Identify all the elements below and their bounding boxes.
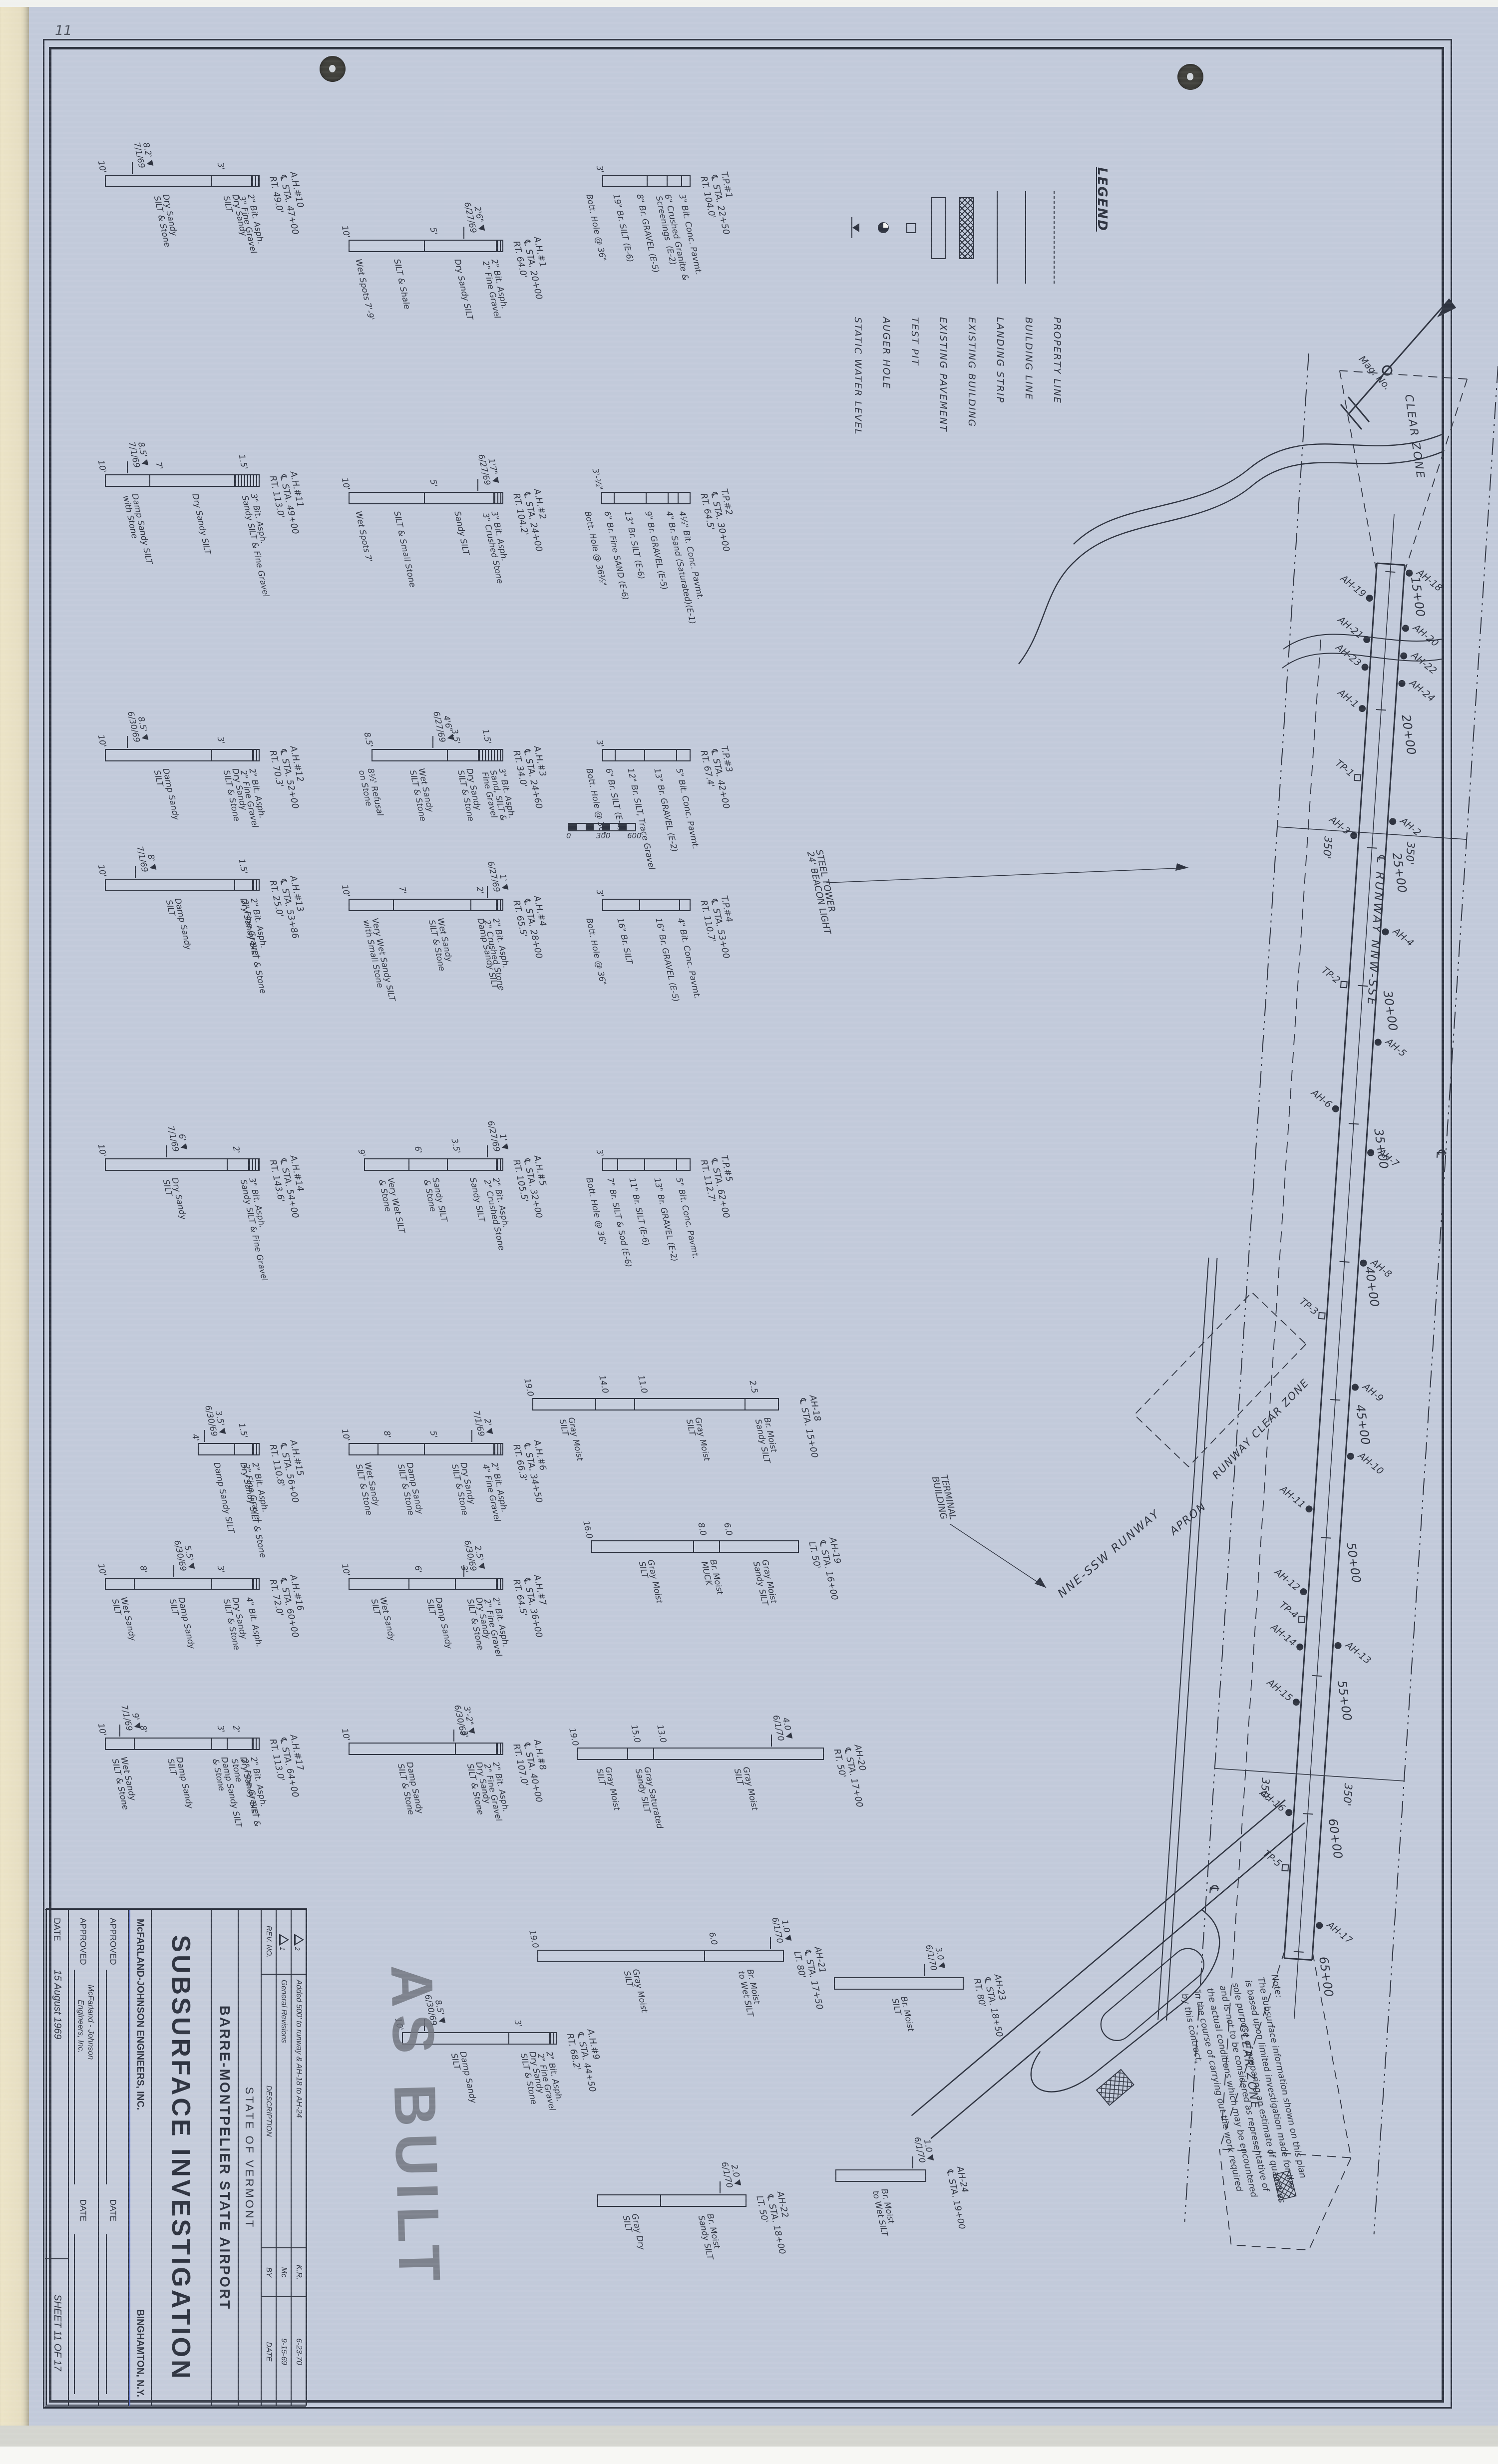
boring-header: A.H.#5 ℄ STA. 32+00 RT. 105.5' [510, 1154, 554, 1221]
water-leader [132, 162, 133, 174]
boring-header: A.H.#12 ℄ STA. 52+00 RT. 70.3' [267, 745, 310, 812]
water-leader [720, 2181, 721, 2193]
rev-by: Mc [276, 2248, 291, 2297]
boring-stick [349, 240, 503, 252]
boring-header: AH-24 ℄ STA. 19+00 [944, 2165, 977, 2230]
boring-stick [198, 1443, 260, 1455]
boring-header: A.H.#16 ℄ STA. 60+00 RT. 72.0' [267, 1574, 310, 1641]
layer-label: Br. Moist SILT [891, 1996, 915, 2034]
depth-tick: 3' [209, 1696, 226, 1734]
layer-label: 16" Br. SILT [616, 917, 634, 965]
layer-boundary [248, 1159, 249, 1170]
water-leader [464, 227, 465, 239]
layer-boundary [252, 1444, 253, 1454]
pavement-cap [479, 750, 503, 760]
firm-city: BINGHAMTON, N.Y. [134, 2309, 145, 2397]
layer-boundary [681, 176, 682, 186]
sheet-number: SHEET 11 OF 17 [51, 2294, 63, 2371]
layer-label: Wet Sandy SILT [111, 1596, 137, 1644]
depth-tick: 6.0 [702, 1908, 719, 1946]
layer-label: Damp Sandy SILT [165, 897, 193, 953]
layer-label: SILT & Shale [392, 258, 411, 310]
static-water-level-mark: 3.0 ▼ 6/1/70 [917, 1910, 947, 1972]
boring-stick [602, 175, 691, 187]
boring-header: AH-18 ℄ STA. 15+00 [796, 1394, 830, 1459]
layer-boundary [424, 1444, 425, 1454]
layer-boundary [614, 493, 615, 503]
total-depth-label: 3' [590, 1126, 605, 1158]
layer-label: Gray Saturated Sandy SILT [634, 1766, 664, 1831]
depth-tick: 8' [375, 1401, 392, 1439]
rev-number-cell: 1 [276, 1909, 291, 1974]
boring-stick [105, 879, 260, 891]
boring-header: A.H.#2 ℄ STA. 24+00 RT. 104.2' [510, 488, 554, 555]
state-row: STATE OF VERMONT [238, 1909, 261, 2407]
layer-label: 3" Bit. Asph. Sand, SILT & Fine Gravel [480, 767, 517, 823]
depth-tick: 3' [209, 707, 226, 745]
pavement-cap [253, 750, 259, 760]
total-depth-label: 10' [92, 847, 108, 878]
total-depth-label: 10' [336, 1546, 352, 1577]
boring-header: A.H.#8 ℄ STA. 40+00 RT. 107.0' [510, 1739, 554, 1805]
pavement-cap [253, 1444, 259, 1454]
layer-label: Very Wet Sandy SILT with Small Stone [362, 917, 397, 1004]
depth-tick: 11.0 [632, 1356, 649, 1394]
layer-boundary [377, 1444, 378, 1454]
boring-stick [537, 1950, 784, 1962]
pavement-cap [252, 176, 259, 186]
layer-label: Dry Sandy SILT [162, 1177, 188, 1222]
layer-label: Damp Sandy SILT [212, 1461, 236, 1534]
water-leader [924, 1964, 925, 1976]
layer-boundary [676, 750, 677, 760]
layer-label: Bott. Hole @ 36" [585, 1177, 608, 1246]
layer-label: 6" Br. SILT (E-6) [604, 767, 626, 832]
depth-tick: 7' [391, 857, 408, 895]
layer-label: Damp Sandy SILT [449, 2051, 477, 2106]
static-water-level-mark: 8' ▼ 7/1/69 [128, 812, 158, 873]
water-leader [770, 1937, 771, 1949]
total-depth-label: 19.0 [520, 1366, 535, 1398]
signature-line-1: McFarland - Johnson [86, 1985, 95, 2060]
layer-label: 13" Br. SILT (E-6) [623, 510, 646, 580]
layer-label: 12" Br. SILT, Trace Gravel [626, 767, 656, 870]
layer-boundary [549, 2033, 550, 2044]
pavement-cap [497, 1159, 502, 1170]
layer-label: Gray Moist Sandy SILT [752, 1559, 778, 1606]
approved-label-2: APPROVED [78, 1918, 88, 1965]
static-water-level-mark: 8.2' ▼ 7/1/69 [125, 108, 155, 169]
layer-boundary [639, 900, 640, 910]
boring-header: A.H.#14 ℄ STA. 54+00 RT. 143.6' [267, 1154, 310, 1221]
drawing-landscape-canvas: 15+0020+0025+0030+0035+0040+0045+0050+00… [0, 0, 1498, 2464]
layer-label: 16" Br. GRAVEL (E-5) [654, 917, 681, 1003]
layer-label: 9" Br. GRAVEL (E-5) [644, 510, 669, 591]
layer-label: 13" Br. GRAVEL (E-2) [653, 767, 679, 853]
boring-header: AH-21 ℄ STA. 17+50 LT. 80' [791, 1946, 834, 2013]
boring-stick [105, 1578, 260, 1590]
depth-tick: 13.0 [651, 1706, 668, 1744]
static-water-level-mark: 1'7" ▼ 6/27/69 [471, 425, 501, 486]
static-water-level-mark: 8.5' ▼ 7/1/69 [120, 407, 150, 469]
layer-label: Damp Sandy SILT [166, 1756, 194, 1811]
static-water-level-mark: 8.5' ▼ 6/30/69 [120, 682, 150, 743]
layer-boundary [627, 1749, 628, 1759]
layer-boundary [494, 1444, 495, 1454]
scan-bottom-margin [0, 2447, 1498, 2464]
boring-header: A.H.#17 ℄ STA. 64+00 RT. 113.0' [267, 1734, 310, 1800]
layer-boundary [595, 1399, 596, 1409]
layer-boundary [408, 1579, 409, 1589]
layer-label: Gray Moist SILT [685, 1416, 712, 1463]
boring-header: T.P.#5 ℄ STA. 62+00 RT. 112.7' [698, 1154, 741, 1221]
rev-by: K.R. [291, 2248, 306, 2297]
total-depth-label: 10' [92, 717, 108, 748]
layer-label: Wet Sandy SILT [370, 1596, 396, 1644]
sheet-title: SUBSURFACE INVESTIGATION [166, 1910, 196, 2406]
layer-label: Damp Sandy SILT [168, 1596, 196, 1652]
layer-boundary [447, 1159, 448, 1170]
boring-stick [601, 492, 691, 504]
depth-tick: 14.0 [593, 1356, 610, 1394]
layer-boundary [645, 1159, 646, 1170]
layer-boundary [251, 176, 252, 186]
depth-tick: 1.5' [233, 1401, 250, 1439]
airport-name: BARRE-MONTPELIER STATE AIRPORT [217, 1910, 233, 2406]
layer-boundary [668, 493, 669, 503]
total-depth-label: 10' [92, 442, 108, 474]
boring-stick [835, 2169, 926, 2182]
layer-boundary [252, 1579, 253, 1589]
water-leader [471, 1430, 472, 1442]
layer-boundary [149, 475, 150, 486]
layer-boundary [447, 750, 448, 760]
layer-label: 13" Br. GRAVEL (E-2) [653, 1177, 679, 1262]
boring-header: A.H.#3 ℄ STA. 24+60 RT. 34.0' [510, 745, 554, 812]
rev-header-date: DATE [261, 2297, 276, 2407]
boring-stick [349, 492, 503, 504]
depth-tick: 3' [209, 1536, 226, 1574]
date-row: DATE 15 August 1969 [45, 1909, 68, 2259]
boring-header: AH-23 ℄ STA. 18+50 RT. 80' [971, 1973, 1014, 2040]
tape-edge-strip [0, 0, 29, 2464]
state-name: STATE OF VERMONT [243, 1910, 256, 2406]
boring-stick [349, 1578, 503, 1590]
boring-header: A.H.#7 ℄ STA. 36+00 RT. 64.5' [510, 1574, 554, 1641]
boring-header: T.P.#4 ℄ STA. 53+00 RT. 110.7' [698, 895, 741, 962]
rev-header-desc: DESCRIPTION [261, 1974, 276, 2248]
static-water-level-mark: 1.0 ▼ 6/1/70 [763, 1883, 793, 1944]
boring-stick [372, 749, 504, 761]
static-water-level-mark: 6' ▼ 7/1/69 [159, 1091, 189, 1153]
depth-tick: 6' [406, 1116, 423, 1154]
sheet-title-row: SUBSURFACE INVESTIGATION [151, 1909, 211, 2407]
total-depth-label: 10' [336, 208, 352, 239]
rev-number-cell: 2 [291, 1909, 306, 1974]
boring-stick [105, 175, 260, 187]
boring-header: A.H.#1 ℄ STA. 20+00 RT. 64.0' [510, 236, 554, 303]
boring-stick [364, 1158, 503, 1171]
layer-boundary [678, 493, 679, 503]
water-leader [127, 736, 128, 748]
static-water-level-mark: 2.0 ▼ 6/1/70 [713, 2127, 743, 2189]
layer-label: 2" Bit. Asph. 2" Crushed Stone [483, 1177, 515, 1251]
layer-label: Br. Moist to Wet SILT [871, 2188, 898, 2237]
layer-label: Damp Sandy SILT & Stone [396, 1461, 424, 1517]
layer-label: Dry Sandy SILT & Stone [450, 1461, 478, 1516]
total-depth-label: 10' [92, 1706, 108, 1737]
layer-label: Wet Sandy SILT & Stone [355, 1461, 382, 1516]
punch-hole-right [1177, 64, 1203, 90]
rev-number: 1 [279, 1947, 286, 1950]
layer-boundary [252, 750, 253, 760]
boring-header: A.H.#15 ℄ STA. 56+00 RT. 110.8' [267, 1439, 310, 1506]
layer-boundary [211, 1739, 212, 1749]
total-depth-label: 4' [185, 1411, 201, 1442]
total-depth-label: 10' [92, 1126, 108, 1158]
layer-boundary [615, 750, 616, 760]
as-built-stamp: AS BUILT [377, 1964, 454, 2289]
layer-label: 5" Bit. Conc. Pavmt. [675, 767, 701, 850]
firm-name: McFARLAND-JOHNSON ENGINEERS, INC. [134, 1919, 145, 2110]
layer-boundary [496, 241, 497, 251]
boring-header: A.H.#11 ℄ STA. 49+00 RT. 113.0' [267, 470, 310, 537]
layer-label: Damp Sandy SILT & Stone [396, 1761, 424, 1816]
layer-label: 8½' Refusal on Stone [358, 767, 384, 819]
date-row-label: DATE [51, 1918, 62, 1941]
layer-label: Gray Moist SILT [623, 1968, 649, 2015]
total-depth-label: 10' [336, 1411, 352, 1442]
water-leader [205, 1430, 206, 1442]
static-water-level-mark: 3'-2" ▼ 6/30/69 [447, 1676, 477, 1737]
total-depth-label: 19.0 [525, 1918, 540, 1949]
pavement-cap [497, 900, 502, 910]
total-depth-label: 10' [336, 867, 352, 898]
layer-boundary [235, 880, 236, 890]
layer-label: Br. Moist Sandy SILT [697, 2213, 724, 2260]
pavement-cap [497, 241, 502, 251]
water-leader [464, 1565, 465, 1577]
layer-boundary [424, 493, 425, 503]
layer-label: Gray Moist SILT [595, 1766, 622, 1813]
approved-row-1: APPROVED DATE [98, 1909, 128, 2407]
layer-label: Dry Sandy SILT & Stone [152, 193, 180, 248]
depth-tick: 6' [406, 1536, 423, 1574]
water-leader [119, 1725, 120, 1737]
boring-header: T.P.#1 ℄ STA. 22+50 RT. 104.0' [698, 171, 741, 238]
layer-label: Dry Sandy SILT [191, 493, 212, 555]
boring-header: A.H.#9 ℄ STA. 44+50 RT. 68.2' [564, 2028, 607, 2095]
water-leader [174, 1565, 175, 1577]
boring-header: A.H.#4 ℄ STA. 28+00 RT. 65.5' [510, 895, 554, 962]
static-water-level-mark: 1' ▼ 6/27/69 [480, 1091, 510, 1153]
airport-row: BARRE-MONTPELIER STATE AIRPORT [211, 1909, 238, 2407]
boring-header: A.H.#10 ℄ STA. 47+00 RT. 49.0' [267, 171, 310, 238]
approved-line-1 [106, 1970, 107, 2184]
date-label-2: DATE [78, 2199, 88, 2221]
depth-tick: 3.5' [445, 1116, 462, 1154]
layer-boundary [496, 900, 497, 910]
layer-boundary [455, 1579, 456, 1589]
rev-date: 9-15-69 [276, 2297, 291, 2407]
date-label-1: DATE [108, 2199, 118, 2221]
approved-line-2 [74, 1970, 75, 2184]
static-water-level-mark: 2'6" ▼ 6/27/69 [457, 173, 487, 234]
layer-label: Bott. Hole @ 36" [585, 193, 608, 262]
boring-stick [349, 899, 503, 911]
layer-boundary [676, 1159, 677, 1170]
layer-label: 3" Bit. Asph. 3" Crushed Stone [481, 510, 513, 585]
layer-boundary [408, 1159, 409, 1170]
layer-boundary [745, 1399, 746, 1409]
boring-stick [834, 1977, 964, 1990]
depth-tick: 2' [468, 857, 485, 895]
layer-label: Gray Dry SILT [622, 2213, 647, 2253]
layer-label: 3" Bit. Asph. Sandy SILT & Fine Gravel [239, 1177, 278, 1282]
layer-boundary [235, 475, 236, 486]
total-depth-label: 3' [590, 143, 605, 174]
total-depth-label: 16.0 [579, 1508, 594, 1540]
boring-stick [577, 1748, 824, 1760]
layer-boundary [496, 1579, 497, 1589]
layer-boundary [667, 176, 668, 186]
total-depth-label: 10' [336, 460, 352, 491]
boring-header: T.P.#3 ℄ STA. 42+00 RT. 67.4' [698, 745, 741, 812]
depth-tick: 1.5' [233, 432, 250, 470]
layer-boundary [211, 1579, 212, 1589]
boring-header: T.P.#2 ℄ STA. 30+00 RT. 64.5' [698, 488, 741, 555]
static-water-level-mark: 2' ▼ 7/1/69 [465, 1376, 495, 1437]
layer-boundary [647, 176, 648, 186]
rev-description: General Revisions [276, 1974, 291, 2248]
layer-label: SILT & Small Stone [392, 510, 417, 588]
total-depth-label: 10' [92, 1546, 108, 1577]
layer-label: 19" Br. SILT (E-6) [611, 193, 634, 263]
layer-boundary [634, 1399, 635, 1409]
static-water-level-mark: 4.0 ▼ 6/1/70 [764, 1681, 794, 1742]
punch-hole-left [320, 56, 346, 82]
boring-stick [602, 899, 691, 911]
layer-label: Very Wet SILT & Stone [377, 1177, 406, 1236]
depth-tick: 8' [132, 1536, 149, 1574]
total-depth-label: 10' [336, 1711, 352, 1742]
layer-label: 11" Br. SILT (E-6) [628, 1177, 651, 1247]
water-leader [912, 2156, 913, 2168]
water-leader [487, 1145, 488, 1157]
water-leader [135, 866, 136, 878]
layer-boundary [660, 2195, 661, 2206]
scan-bottom-tear-band [0, 2426, 1498, 2447]
scan-top-edge [0, 0, 1498, 7]
boring-stick [532, 1398, 779, 1410]
firm-underline [129, 1910, 130, 2406]
layer-label: Br. Moist Sandy SILT [754, 1416, 780, 1464]
layer-boundary [617, 1159, 618, 1170]
layer-boundary [211, 750, 212, 760]
scanned-drawing-sheet: 15+0020+0025+0030+0035+0040+0045+0050+00… [0, 0, 1498, 2464]
title-block: 2Added 500' to runway & AH-18 to AH-24K.… [46, 1908, 307, 2406]
water-leader [771, 1735, 772, 1747]
layer-label: Bott. Hole @ 36" [585, 917, 608, 986]
water-leader [477, 479, 478, 491]
layer-boundary [134, 1739, 135, 1749]
pavement-cap [495, 1444, 503, 1454]
boring-stick [591, 1540, 799, 1553]
layer-label: Gray Moist SILT [733, 1766, 759, 1813]
depth-tick: 1.5' [233, 837, 250, 875]
firm-row: McFARLAND-JOHNSON ENGINEERS, INC. BINGHA… [128, 1909, 151, 2407]
layer-boundary [235, 1444, 236, 1454]
layer-label: Wet Sandy SILT & Stone [111, 1756, 139, 1810]
layer-label: Wet Spots 7'-9' [354, 258, 375, 321]
layer-label: Gray Moist SILT [558, 1416, 584, 1463]
date-row-value: 15 August 1969 [51, 1970, 63, 2039]
total-depth-label: 3'-½" [589, 460, 604, 491]
layer-label: Wet Spots 7' [354, 510, 373, 563]
pavement-cap [497, 1579, 502, 1589]
rev-number: 2 [294, 1947, 301, 1950]
date-line-2 [74, 2234, 75, 2394]
water-leader [127, 461, 128, 473]
pavement-cap [253, 1739, 259, 1749]
boring-header: A.H.#6 ℄ STA. 34+50 RT. 66.3' [510, 1439, 554, 1506]
layer-boundary [494, 493, 495, 503]
layer-label: Br. Moist to Wet SILT [737, 1968, 764, 2018]
layer-boundary [134, 1579, 135, 1589]
pavement-cap [497, 1744, 502, 1754]
layer-label: 7" Br. SILT & Sod (E-6) [606, 1177, 633, 1268]
boring-stick [349, 1443, 503, 1455]
depth-tick: 15.0 [625, 1706, 642, 1744]
total-depth-label: 3' [590, 717, 605, 748]
layer-label: 2" Bit. Asph. 2" Fine Gravel [481, 258, 511, 319]
depth-tick: 2.5 [743, 1356, 759, 1394]
layer-boundary [455, 1744, 456, 1754]
layer-label: Dry Sandy SILT [453, 258, 474, 321]
layer-label: Wet Sandy SILT & Stone [408, 767, 436, 822]
layer-label: Sandy SILT & Stone [422, 1177, 449, 1224]
boring-stick [105, 1158, 260, 1171]
static-water-level-mark: 1.0 ▼ 6/1/70 [906, 2103, 936, 2164]
layer-boundary [653, 1749, 654, 1759]
pavement-cap [249, 1159, 259, 1170]
water-leader [166, 1145, 167, 1157]
layer-boundary [227, 1159, 228, 1170]
handwritten-page-number: 11 [55, 23, 72, 38]
static-water-level-mark: 1' ▼ 6/27/69 [480, 832, 510, 893]
depth-tick: 2' [225, 1696, 242, 1734]
boring-header: AH-22 ℄ STA. 18+00 LT. 50' [753, 2190, 797, 2257]
pavement-cap [236, 475, 259, 486]
depth-tick: 8.0 [691, 1498, 708, 1536]
layer-boundary [719, 1541, 720, 1552]
total-depth-label: 8.5' [360, 717, 375, 748]
depth-tick: 6.0 [717, 1498, 734, 1536]
water-leader [433, 736, 434, 748]
pavement-cap [253, 1579, 259, 1589]
rev-header-by: BY [261, 2248, 276, 2297]
boring-header: AH-19 ℄ STA. 16+00 LT. 50' [806, 1536, 849, 1603]
depth-tick: 5' [422, 1401, 439, 1439]
pavement-cap [253, 880, 259, 890]
signature-line-2: Engineers, Inc. [76, 2000, 85, 2053]
layer-boundary [252, 1739, 253, 1749]
boring-stick [105, 474, 260, 487]
layer-label: Damp Sandy SILT with Stone [121, 493, 153, 567]
layer-boundary [704, 1951, 705, 1961]
date-line-1 [106, 2234, 107, 2394]
boring-header: AH-20 ℄ STA. 17+00 RT. 50' [831, 1744, 874, 1810]
